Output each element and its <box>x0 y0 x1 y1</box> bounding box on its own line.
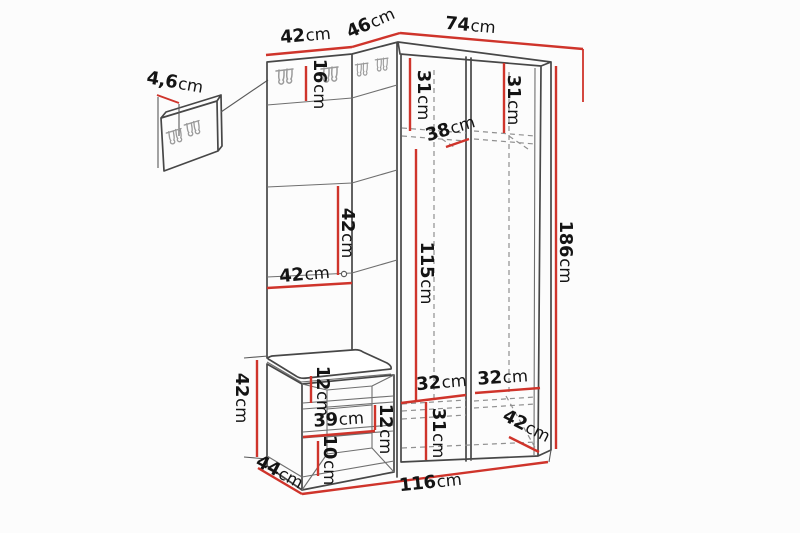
label-panel-width: 42cm <box>278 262 330 287</box>
label-lower-compartment: 31cm <box>428 408 449 459</box>
label-upper-shelf-right: 31cm <box>503 75 524 126</box>
coat-hook-icon <box>276 69 293 84</box>
label-total-height: 186cm <box>555 221 576 284</box>
label-panel-section-height: 42cm <box>337 208 358 259</box>
dimension-line-panel-thickness <box>157 95 179 103</box>
coat-hook-icon <box>184 121 201 137</box>
detail-leader-line <box>221 80 268 112</box>
label-upper-shelf-left: 31cm <box>413 70 434 121</box>
label-interior-height: 115cm <box>416 242 437 305</box>
label-bench-mid-gap: 12cm <box>375 404 396 455</box>
label-panel-thickness: 4,6cm <box>145 67 205 98</box>
drawing-canvas: 42cm 46cm 74cm 4,6cm 16cm 31cm 31cm 38cm… <box>0 0 800 533</box>
dimension-labels: 42cm 46cm 74cm 4,6cm 16cm 31cm 31cm 38cm… <box>145 3 576 496</box>
label-bench-bottom-gap: 10cm <box>319 435 340 486</box>
coat-hook-icon <box>355 63 368 76</box>
label-hook-rail-height: 16cm <box>309 59 330 110</box>
label-compartment-right: 32cm <box>477 365 529 389</box>
junction-node <box>341 271 346 276</box>
coat-hook-icon <box>166 129 183 145</box>
label-top-left-width: 42cm <box>279 23 331 48</box>
label-bench-depth: 44cm <box>252 451 307 493</box>
dimension-drawing: 42cm 46cm 74cm 4,6cm 16cm 31cm 31cm 38cm… <box>0 0 800 533</box>
label-total-width: 116cm <box>398 469 463 496</box>
label-top-right-width: 74cm <box>444 13 496 38</box>
label-compartment-left: 32cm <box>415 370 467 395</box>
label-bench-height: 42cm <box>231 373 252 424</box>
dim-line-top-left-width <box>266 47 352 55</box>
wall-panel-detail <box>157 80 268 171</box>
label-wardrobe-depth: 42cm <box>499 405 554 447</box>
wall-panel-outline <box>161 95 222 171</box>
coat-hook-icon <box>375 58 388 71</box>
